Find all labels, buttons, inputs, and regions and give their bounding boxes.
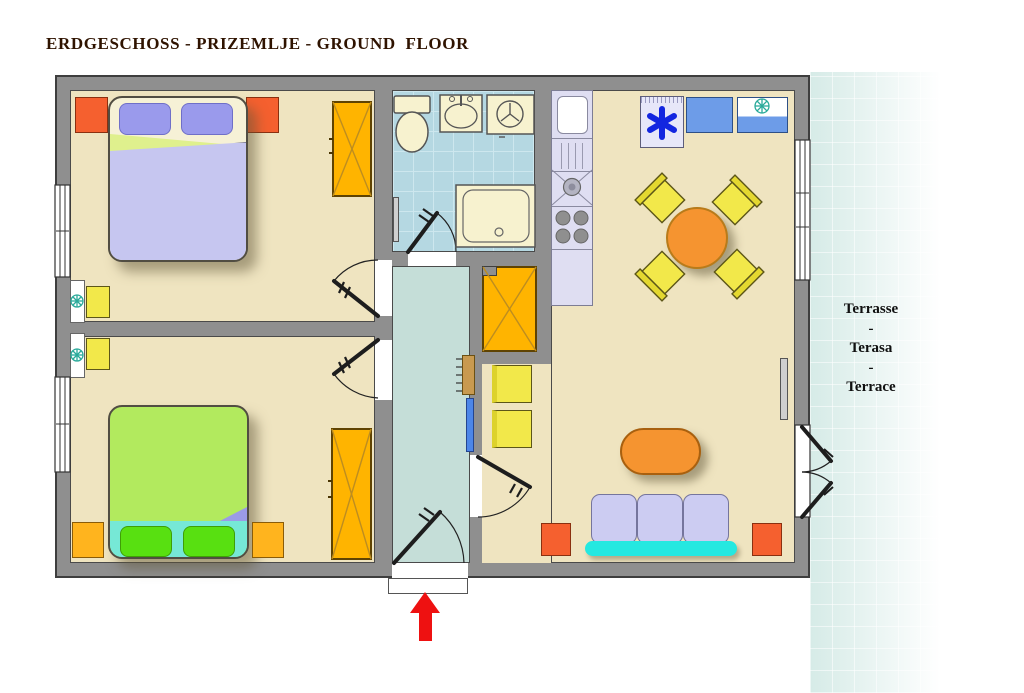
entrance-threshold xyxy=(388,578,468,594)
sofa-cushion xyxy=(683,494,729,544)
bedroom-2-desk xyxy=(70,333,85,378)
bedroom-2-nightstand-right xyxy=(252,522,284,558)
dining-table xyxy=(666,207,728,269)
sofa-base xyxy=(585,541,737,556)
bathroom-floor xyxy=(392,90,535,252)
bedroom-1-door-gap xyxy=(375,260,392,316)
bedroom-1-double-bed xyxy=(108,96,248,262)
hallway-mirror xyxy=(466,398,474,452)
kitchen-counter xyxy=(551,90,593,306)
living-door-gap xyxy=(470,455,482,517)
living-room-radiator xyxy=(780,358,788,420)
sofa-cushion xyxy=(591,494,637,544)
bed-pillow xyxy=(181,103,233,135)
bedroom-2-nightstand-left xyxy=(72,522,104,558)
coat-rack xyxy=(462,355,475,395)
kitchen-appliance-blue xyxy=(686,97,733,133)
coffee-table xyxy=(620,428,701,475)
hall-chair-1 xyxy=(492,365,532,403)
hall-wardrobe xyxy=(482,266,537,352)
terrace-label: Terrasse - Terasa - Terrace xyxy=(810,300,932,398)
bed-pillow xyxy=(120,526,172,557)
bed-pillow xyxy=(183,526,235,557)
bed-pillow xyxy=(119,103,171,135)
bedroom-2-desk-chair xyxy=(86,338,110,370)
bedroom-2-wardrobe xyxy=(331,428,372,560)
bedroom-1-nightstand-right xyxy=(246,97,279,133)
wall-stub xyxy=(482,266,497,276)
kitchen-drainer xyxy=(555,143,589,169)
bedroom-2-double-bed xyxy=(108,405,249,559)
bedroom-2-door-gap xyxy=(375,340,392,400)
side-table-left xyxy=(541,523,571,556)
freezer xyxy=(640,96,684,148)
bed-blanket xyxy=(110,142,248,262)
side-table-right xyxy=(752,523,782,556)
bedroom-1-desk xyxy=(70,280,85,323)
sofa-cushion xyxy=(637,494,683,544)
bedroom-1-nightstand-left xyxy=(75,97,108,133)
refrigerator-unit xyxy=(737,97,788,133)
bathroom-radiator xyxy=(393,197,399,242)
page-title: ERDGESCHOSS - PRIZEMLJE - GROUND FLOOR xyxy=(46,34,469,54)
entrance-door-gap xyxy=(392,563,468,578)
bedroom-1-desk-chair xyxy=(86,286,110,318)
kitchen-fridge-top xyxy=(557,96,588,134)
hallway-floor xyxy=(392,266,470,563)
bedroom-1-wardrobe xyxy=(332,101,372,197)
hall-chair-2 xyxy=(492,410,532,448)
floor-plan-canvas: ERDGESCHOSS - PRIZEMLJE - GROUND FLOOR T… xyxy=(0,0,1024,693)
entrance-arrow xyxy=(410,592,440,641)
bathroom-door-gap xyxy=(408,252,456,266)
